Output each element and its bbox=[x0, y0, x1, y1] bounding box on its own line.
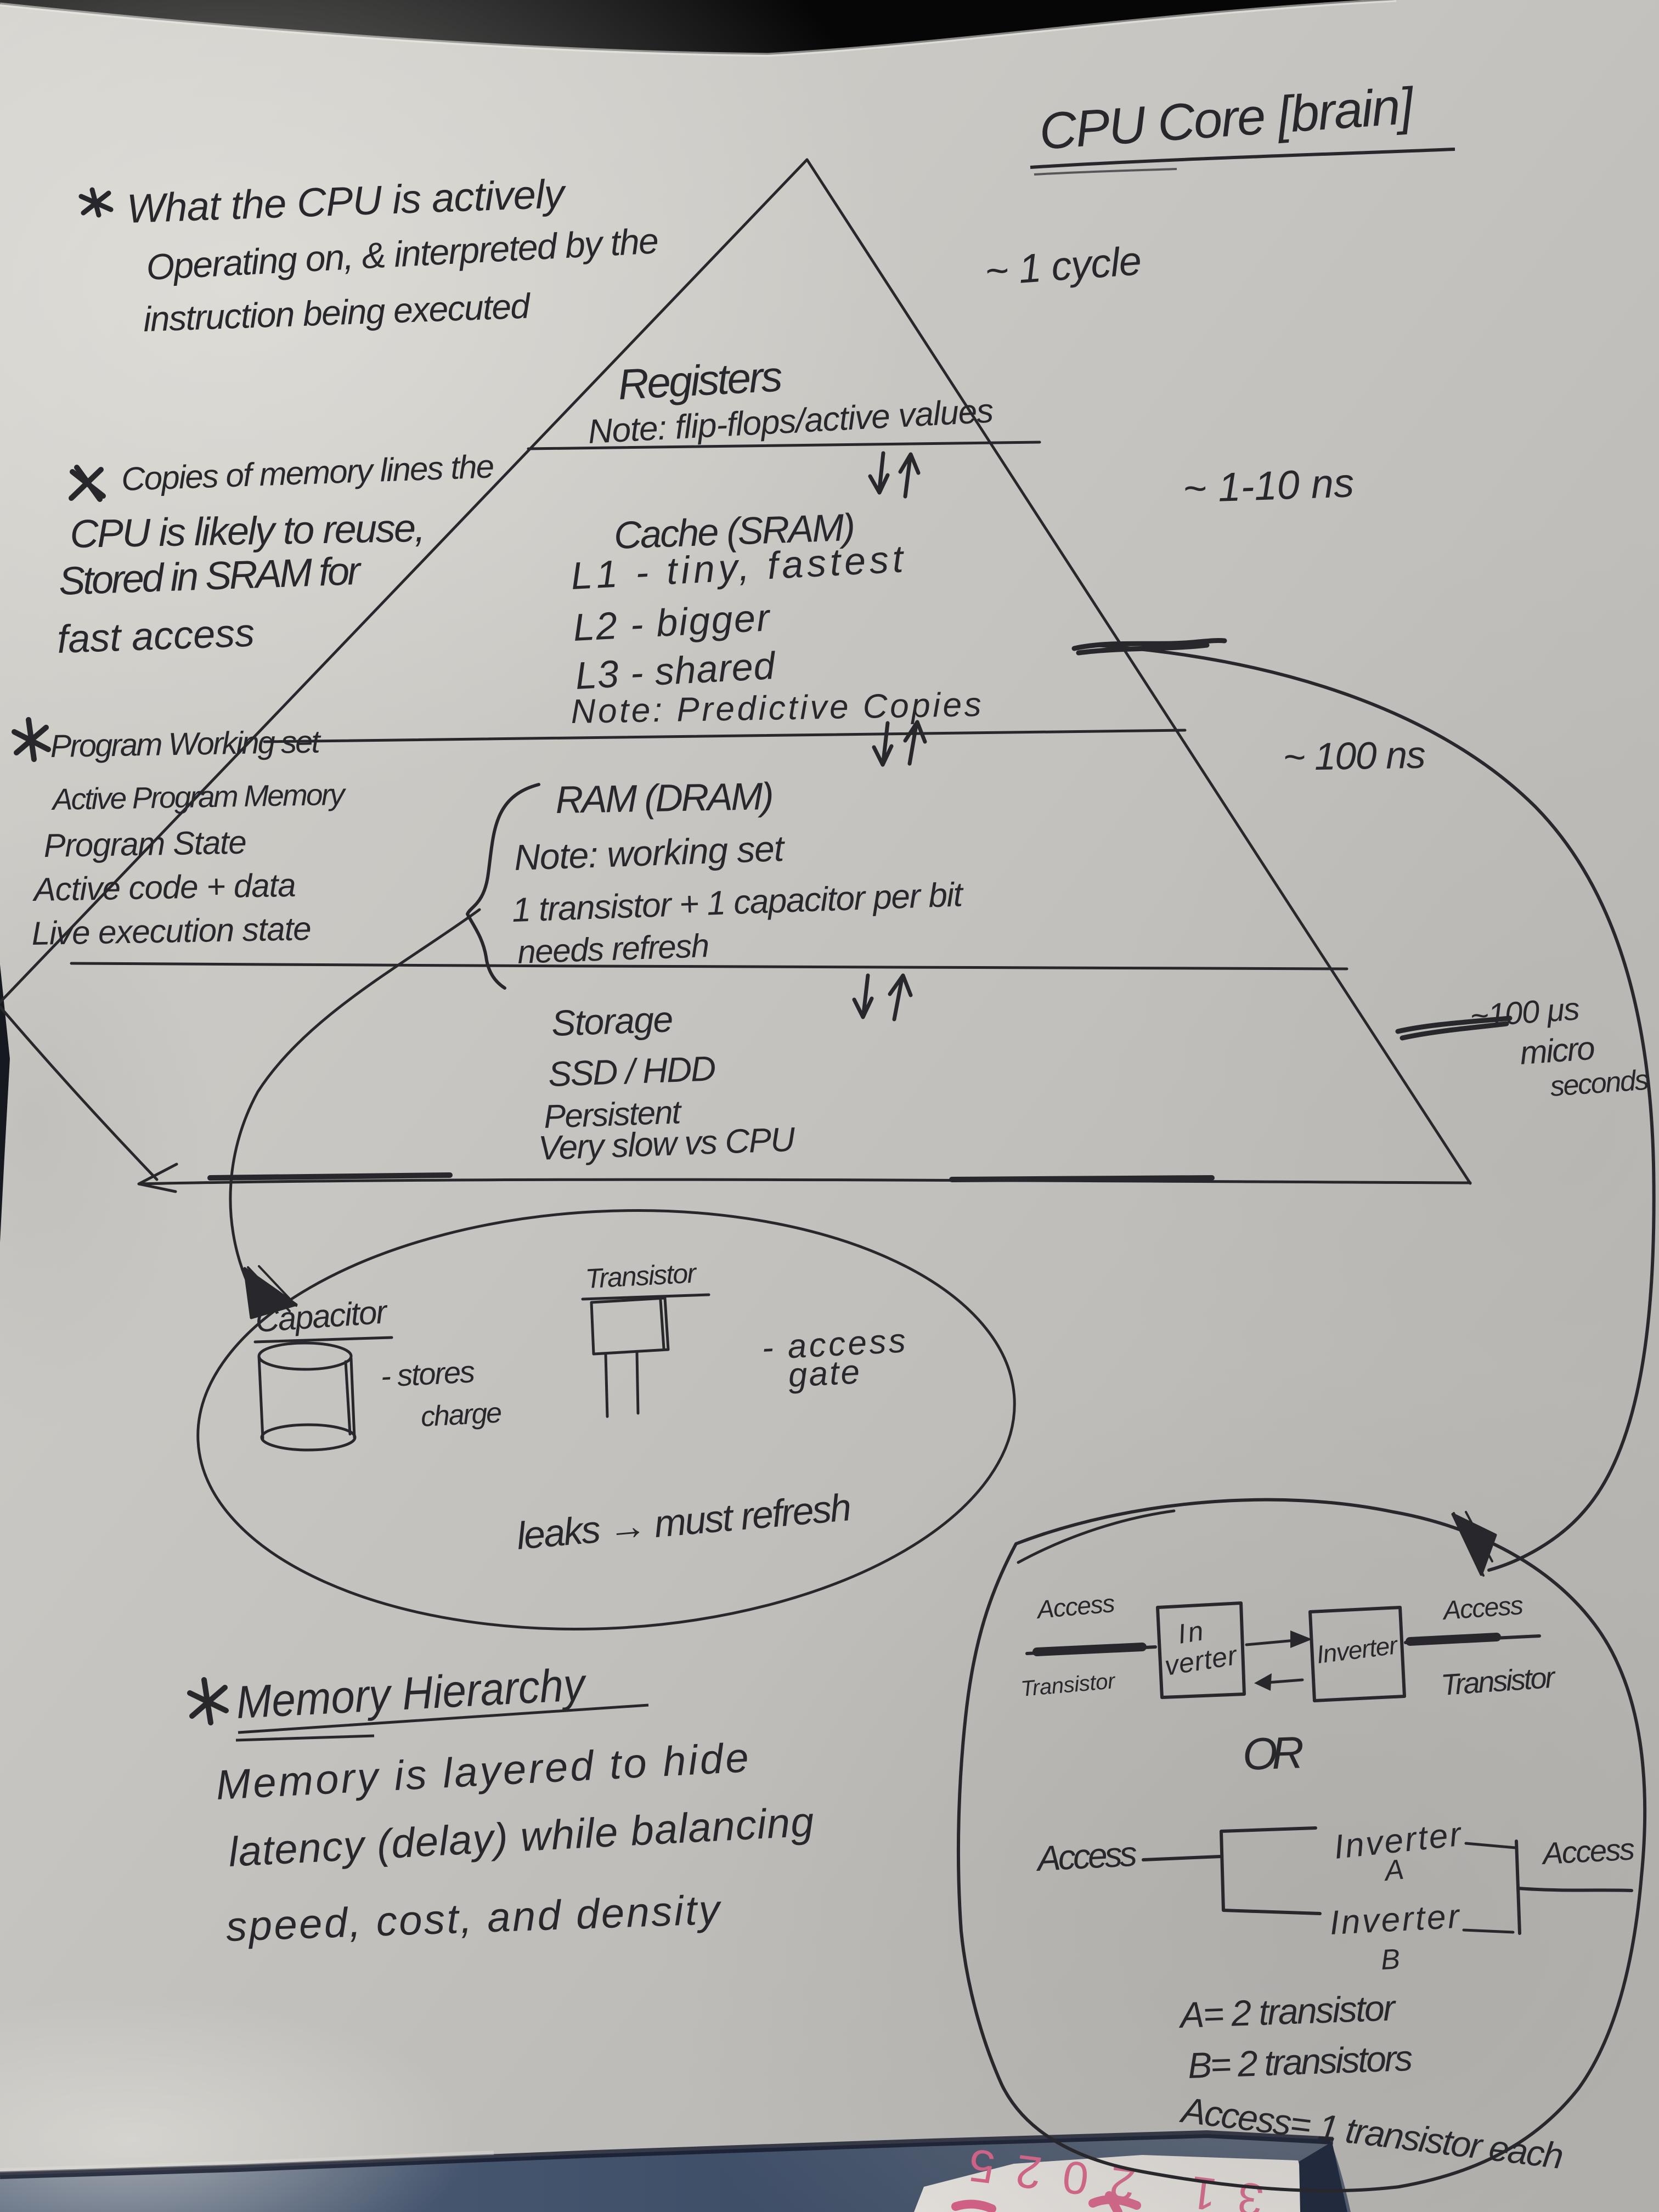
svg-text:Storage: Storage bbox=[551, 998, 674, 1043]
svg-text:Active Program Memory: Active Program Memory bbox=[50, 777, 347, 816]
svg-text:SSD / HDD: SSD / HDD bbox=[548, 1048, 716, 1094]
svg-text:needs refresh: needs refresh bbox=[517, 927, 710, 970]
svg-text:A= 2 transistor: A= 2 transistor bbox=[1177, 1987, 1397, 2035]
svg-text:~ 100 ns: ~ 100 ns bbox=[1283, 733, 1426, 778]
svg-text:Active code + data: Active code + data bbox=[32, 867, 296, 908]
svg-text:Access: Access bbox=[1540, 1831, 1635, 1871]
svg-text:B: B bbox=[1380, 1943, 1401, 1976]
svg-text:~100 μs: ~100 μs bbox=[1469, 991, 1581, 1034]
svg-text:RAM (DRAM): RAM (DRAM) bbox=[555, 775, 774, 821]
svg-text:Transistor: Transistor bbox=[585, 1257, 698, 1294]
svg-text:Program State: Program State bbox=[43, 824, 247, 864]
svg-text:B= 2 transistors: B= 2 transistors bbox=[1187, 2038, 1413, 2086]
svg-text:Live execution state: Live execution state bbox=[31, 910, 312, 952]
svg-text:Registers: Registers bbox=[617, 352, 783, 409]
svg-text:Note: Predictive Copies: Note: Predictive Copies bbox=[571, 686, 981, 731]
svg-text:CPU is likely to reuse,: CPU is likely to reuse, bbox=[70, 506, 426, 556]
svg-text:OR: OR bbox=[1242, 1728, 1305, 1780]
svg-text:Access: Access bbox=[1441, 1591, 1524, 1626]
svg-text:micro: micro bbox=[1519, 1030, 1596, 1071]
svg-text:- stores: - stores bbox=[380, 1354, 476, 1393]
svg-text:fast access: fast access bbox=[57, 611, 256, 662]
svg-text:Access: Access bbox=[1034, 1834, 1138, 1879]
svg-text:Inverter: Inverter bbox=[1329, 1898, 1462, 1942]
svg-text:charge: charge bbox=[420, 1397, 503, 1433]
svg-text:gate: gate bbox=[787, 1353, 860, 1395]
svg-text:Program Working set: Program Working set bbox=[50, 724, 322, 764]
svg-text:~ 1-10 ns: ~ 1-10 ns bbox=[1182, 460, 1355, 511]
